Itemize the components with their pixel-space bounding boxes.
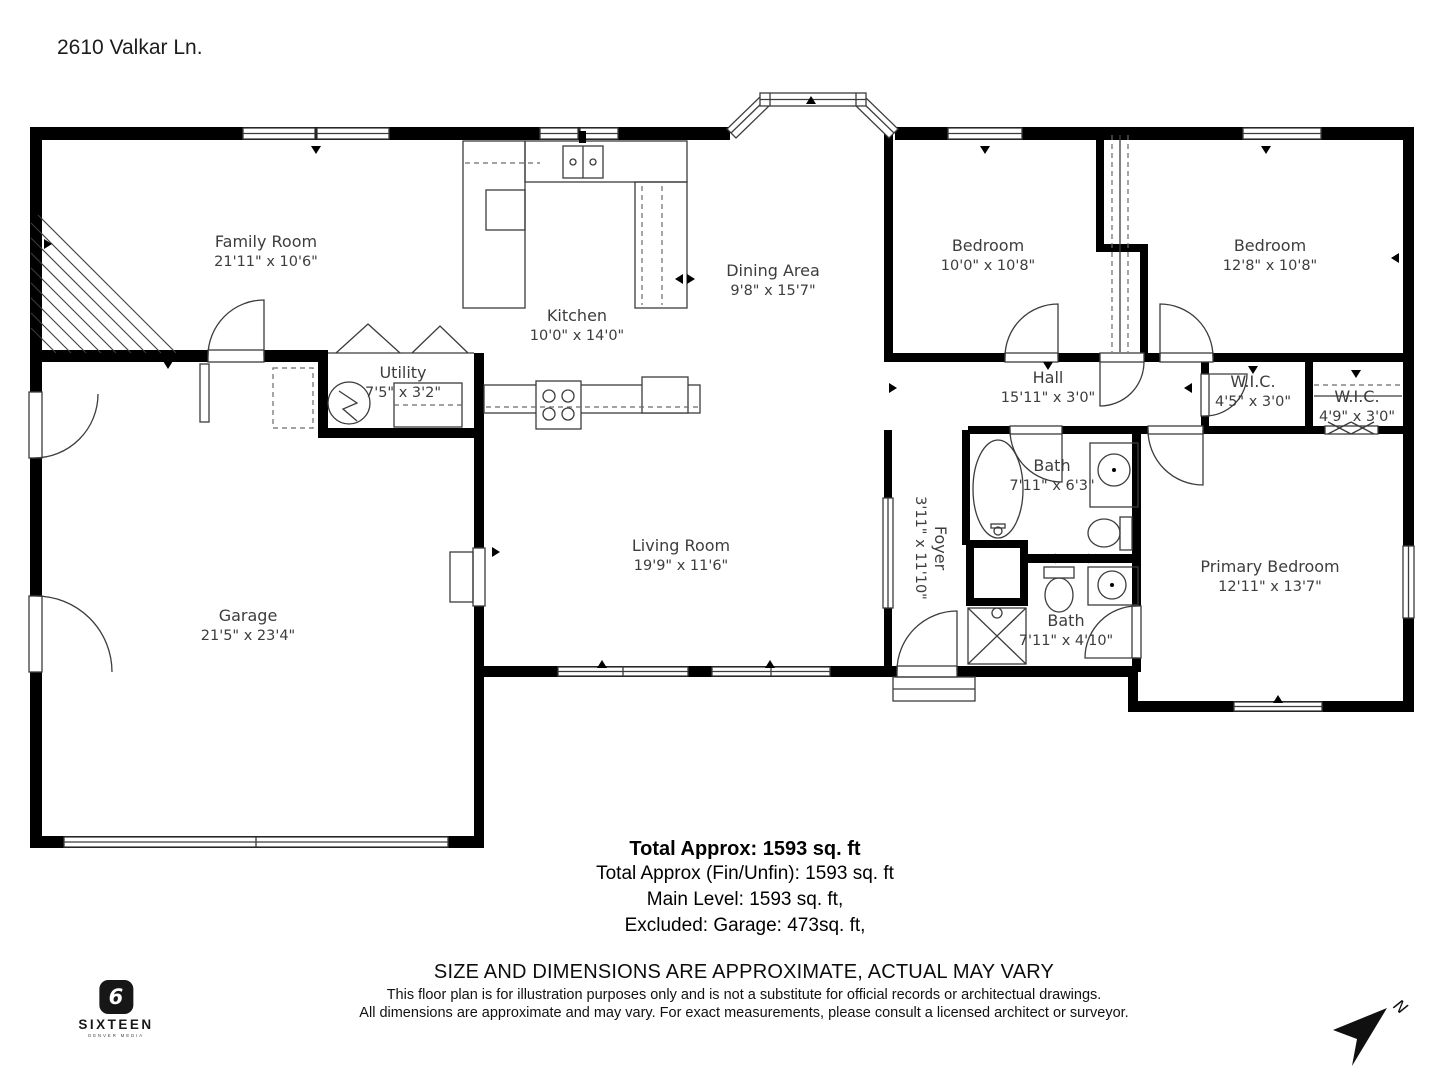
window bbox=[712, 667, 830, 676]
window bbox=[1243, 128, 1321, 139]
room-dims: 7'5" x 3'2" bbox=[365, 384, 441, 403]
room-name: Bedroom bbox=[941, 236, 1035, 257]
room-label-bath-2: Bath 7'11" x 4'10" bbox=[1019, 611, 1113, 651]
room-dims: 21'11" x 10'6" bbox=[214, 253, 318, 272]
floor-plan-page: 2610 Valkar Ln. Family Room 21'11" x 10'… bbox=[0, 0, 1440, 1080]
room-name: Primary Bedroom bbox=[1200, 557, 1339, 578]
room-dims: 19'9" x 11'6" bbox=[632, 557, 730, 576]
room-dims: 10'0" x 14'0" bbox=[530, 327, 624, 346]
counter bbox=[525, 141, 687, 182]
window bbox=[540, 128, 578, 139]
room-name: W.I.C. bbox=[1215, 372, 1291, 393]
room-dims: 9'8" x 15'7" bbox=[726, 282, 820, 301]
front-stoop bbox=[893, 677, 975, 701]
room-label-bedroom-2: Bedroom 12'8" x 10'8" bbox=[1223, 236, 1317, 276]
room-dims: 7'11" x 4'10" bbox=[1019, 632, 1113, 651]
room-dims: 12'8" x 10'8" bbox=[1223, 257, 1317, 276]
appliance-dashed bbox=[273, 368, 313, 428]
room-label-wic-1: W.I.C. 4'5" x 3'0" bbox=[1215, 372, 1291, 412]
room-label-living-room: Living Room 19'9" x 11'6" bbox=[632, 536, 730, 576]
excluded-garage: Excluded: Garage: 473sq. ft, bbox=[625, 915, 866, 937]
room-label-family-room: Family Room 21'11" x 10'6" bbox=[214, 232, 318, 272]
north-label: N bbox=[1390, 996, 1411, 1018]
room-label-primary-bedroom: Primary Bedroom 12'11" x 13'7" bbox=[1200, 557, 1339, 597]
cased-opening bbox=[883, 498, 893, 608]
north-arrow-icon: N bbox=[1325, 988, 1425, 1078]
linen-closet bbox=[970, 544, 1024, 602]
room-label-kitchen: Kitchen 10'0" x 14'0" bbox=[530, 306, 624, 346]
window bbox=[243, 128, 315, 139]
water-heater bbox=[328, 382, 370, 424]
room-name: Hall bbox=[1001, 368, 1095, 389]
vanity-sink bbox=[1090, 443, 1138, 507]
toilet bbox=[1044, 567, 1074, 612]
room-dims: 21'5" x 23'4" bbox=[201, 627, 295, 646]
shower bbox=[968, 608, 1026, 664]
room-name: Garage bbox=[201, 606, 295, 627]
room-name: W.I.C. bbox=[1319, 387, 1395, 408]
room-name: Living Room bbox=[632, 536, 730, 557]
room-dims: 4'9" x 3'0" bbox=[1319, 408, 1395, 427]
room-name: Utility bbox=[365, 363, 441, 384]
disclaimer-heading: SIZE AND DIMENSIONS ARE APPROXIMATE, ACT… bbox=[434, 961, 1054, 984]
kitchen-fixtures bbox=[463, 131, 700, 429]
room-name: Kitchen bbox=[530, 306, 624, 327]
toilet bbox=[1088, 517, 1132, 550]
room-name: Foyer bbox=[929, 496, 950, 600]
vanity-sink bbox=[1088, 567, 1138, 605]
room-name: Family Room bbox=[214, 232, 318, 253]
window bbox=[1403, 546, 1414, 618]
disclaimer-line-2: All dimensions are approximate and may v… bbox=[359, 1005, 1128, 1021]
room-dims: 4'5" x 3'0" bbox=[1215, 393, 1291, 412]
pantry bbox=[635, 182, 687, 308]
room-name: Bedroom bbox=[1223, 236, 1317, 257]
refrigerator bbox=[486, 190, 525, 230]
stove bbox=[536, 381, 581, 429]
bay-window bbox=[727, 93, 898, 138]
room-name: Dining Area bbox=[726, 261, 820, 282]
room-label-utility: Utility 7'5" x 3'2" bbox=[365, 363, 441, 403]
room-dims: 12'11" x 13'7" bbox=[1200, 578, 1339, 597]
room-label-garage: Garage 21'5" x 23'4" bbox=[201, 606, 295, 646]
room-label-dining-area: Dining Area 9'8" x 15'7" bbox=[726, 261, 820, 301]
room-label-bedroom-1: Bedroom 10'0" x 10'8" bbox=[941, 236, 1035, 276]
window bbox=[317, 128, 389, 139]
room-dims: 3'11" x 11'10" bbox=[910, 496, 929, 600]
total-approx: Total Approx: 1593 sq. ft bbox=[629, 838, 860, 861]
sixteen-logo: 6 SIXTEEN DENVER MEDIA bbox=[78, 980, 153, 1038]
window bbox=[1234, 702, 1322, 711]
room-name: Bath bbox=[1019, 611, 1113, 632]
sixteen-logo-brand: SIXTEEN bbox=[78, 1017, 153, 1032]
garage-door bbox=[64, 837, 448, 847]
address-label: 2610 Valkar Ln. bbox=[57, 36, 203, 60]
room-dims: 7'11" x 6'3" bbox=[1009, 477, 1094, 496]
sixteen-logo-tagline: DENVER MEDIA bbox=[88, 1033, 144, 1038]
room-dims: 10'0" x 10'8" bbox=[941, 257, 1035, 276]
room-label-wic-2: W.I.C. 4'9" x 3'0" bbox=[1319, 387, 1395, 427]
stairs bbox=[31, 215, 176, 353]
sixteen-logo-icon: 6 bbox=[99, 980, 133, 1014]
window bbox=[948, 128, 1022, 139]
main-level: Main Level: 1593 sq. ft, bbox=[647, 889, 843, 911]
total-fin-unfin: Total Approx (Fin/Unfin): 1593 sq. ft bbox=[596, 863, 894, 885]
counter bbox=[463, 141, 525, 308]
room-label-hall: Hall 15'11" x 3'0" bbox=[1001, 368, 1095, 408]
room-label-bath-1: Bath 7'11" x 6'3" bbox=[1009, 456, 1094, 496]
window bbox=[558, 667, 688, 676]
room-dims: 15'11" x 3'0" bbox=[1001, 389, 1095, 408]
room-label-foyer: Foyer 3'11" x 11'10" bbox=[910, 496, 950, 600]
room-name: Bath bbox=[1009, 456, 1094, 477]
disclaimer-line-1: This floor plan is for illustration purp… bbox=[387, 987, 1102, 1003]
